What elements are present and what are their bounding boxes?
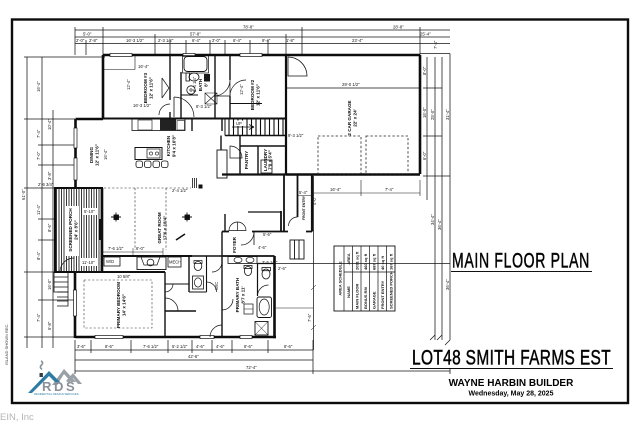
svg-text:LOT48 SMITH FARMS EST: LOT48 SMITH FARMS EST [412,347,611,370]
svg-text:3'-6": 3'-6" [77,344,86,349]
svg-text:7'-4": 7'-4" [385,187,394,192]
svg-text:6'-0": 6'-0" [422,151,427,160]
svg-text:KITCHEN9'4 x 16'8": KITCHEN9'4 x 16'8" [166,135,176,157]
svg-text:DINING12' x 11'6": DINING12' x 11'6" [89,144,99,166]
svg-text:11'-10": 11'-10" [82,260,95,265]
svg-text:40 sq ft: 40 sq ft [380,255,385,270]
svg-text:4'-6": 4'-6" [258,245,267,250]
svg-text:460 sq ft: 460 sq ft [363,253,368,270]
svg-text:2'-8": 2'-8" [89,38,98,43]
svg-text:BONUS RM: BONUS RM [363,287,368,309]
svg-text:AREA: AREA [346,253,351,264]
svg-text:GARAGE: GARAGE [372,291,377,309]
svg-text:8'-6": 8'-6" [244,344,253,349]
svg-text:4'-6": 4'-6" [216,344,225,349]
svg-text:9'-4": 9'-4" [262,38,271,43]
svg-text:4'-6": 4'-6" [196,344,205,349]
svg-text:2'-6 3/4": 2'-6 3/4" [38,182,54,187]
svg-text:16'-4": 16'-4" [103,149,108,160]
svg-text:2091 sq ft: 2091 sq ft [355,251,360,270]
svg-text:7'-0": 7'-0" [36,151,41,160]
svg-text:Wednesday, May 28, 2025: Wednesday, May 28, 2025 [469,391,554,398]
svg-text:9'-3 1/2": 9'-3 1/2" [288,133,304,138]
svg-text:5'-8": 5'-8" [47,321,52,330]
svg-text:16'-4": 16'-4" [36,81,41,92]
svg-text:8'-4 1/4": 8'-4 1/4" [192,76,197,92]
svg-text:3'-5 1/2": 3'-5 1/2" [262,260,278,265]
svg-text:ISLAND SHOWN REC.: ISLAND SHOWN REC. [4,323,9,365]
svg-text:8'-3 1/2": 8'-3 1/2" [196,104,212,109]
svg-text:W/D: W/D [106,259,114,264]
svg-text:4'-0": 4'-0" [312,196,317,205]
svg-text:SCREENED PORCH: SCREENED PORCH [389,271,394,309]
svg-text:RESIDENTIAL DESIGN SERVICES: RESIDENTIAL DESIGN SERVICES [34,392,79,396]
svg-text:8'-6": 8'-6" [47,223,52,232]
svg-text:8'-6": 8'-6" [284,344,293,349]
svg-text:8'-4": 8'-4" [36,251,41,260]
svg-text:6'-4": 6'-4" [233,38,242,43]
svg-text:MECH: MECH [169,260,181,265]
svg-text:16'-3 1/2": 16'-3 1/2" [133,103,151,108]
svg-text:NAME: NAME [346,286,351,298]
svg-text:7'-6 1/2": 7'-6 1/2" [108,246,124,251]
svg-text:16'-4": 16'-4" [330,187,341,192]
svg-text:31'-4": 31'-4" [445,109,450,120]
svg-text:FRONT ENTRY: FRONT ENTRY [380,280,385,309]
svg-text:5'-0": 5'-0" [83,32,92,37]
svg-text:AREA SCHEDULE: AREA SCHEDULE [338,261,343,296]
svg-text:687 sq ft: 687 sq ft [372,253,377,270]
svg-text:7'-4": 7'-4" [433,40,438,49]
svg-text:5'-4": 5'-4" [299,190,308,195]
svg-text:PANTRY: PANTRY [244,151,249,169]
svg-text:5'-6": 5'-6" [263,232,272,237]
svg-text:8'-6": 8'-6" [105,344,114,349]
svg-text:7'-6": 7'-6" [307,313,312,322]
svg-text:10'-4": 10'-4" [47,119,52,130]
svg-text:29'-0 1/2": 29'-0 1/2" [342,82,360,87]
svg-text:1'-8": 1'-8" [286,38,295,43]
svg-text:11'-4": 11'-4" [36,204,41,215]
svg-text:36'-4": 36'-4" [437,219,442,230]
svg-text:78'-8": 78'-8" [243,25,254,30]
svg-text:3'-8": 3'-8" [47,171,52,180]
svg-text:7'-6 1/2": 7'-6 1/2" [143,344,159,349]
svg-text:WIC: WIC [214,282,219,290]
svg-text:25'-0": 25'-0" [430,109,435,120]
svg-text:6'-4": 6'-4" [192,38,201,43]
svg-text:10 5/8": 10 5/8" [117,274,131,279]
svg-text:28'-8": 28'-8" [393,25,404,30]
svg-text:25'-4": 25'-4" [420,32,431,37]
svg-text:16'-3 1/2": 16'-3 1/2" [126,38,144,43]
svg-text:8'-0": 8'-0" [422,66,427,75]
svg-text:16'-0": 16'-0" [422,107,427,118]
svg-text:MAIN FLOOR: MAIN FLOOR [355,284,360,309]
svg-text:42'-6": 42'-6" [188,354,199,359]
svg-text:57'-8": 57'-8" [190,32,201,37]
svg-text:61'-0": 61'-0" [21,189,26,200]
svg-text:5'-10": 5'-10" [84,209,95,214]
svg-text:2'-0": 2'-0" [212,38,221,43]
svg-text:2'-3 1/2": 2'-3 1/2" [158,38,174,43]
svg-text:2'-4 1/2": 2'-4 1/2" [172,188,188,193]
svg-text:7'-4": 7'-4" [36,129,41,138]
svg-text:2'-6": 2'-6" [278,266,287,271]
svg-text:EIN, Inc: EIN, Inc [0,412,34,423]
svg-text:12'-4": 12'-4" [239,84,244,95]
svg-text:FOYER: FOYER [232,236,237,253]
svg-text:23'-4": 23'-4" [352,38,363,43]
svg-text:UP: UP [236,121,242,126]
svg-text:MAIN FLOOR PLAN: MAIN FLOOR PLAN [452,250,590,273]
svg-text:72'-4": 72'-4" [246,365,257,370]
svg-text:16'-4": 16'-4" [138,64,149,69]
svg-text:WAYNE HARBIN BUILDER: WAYNE HARBIN BUILDER [449,378,574,389]
svg-text:7'-4": 7'-4" [36,313,41,322]
svg-text:34'-4": 34'-4" [430,214,435,225]
svg-text:16'-0": 16'-0" [47,279,52,290]
svg-text:FRONT ENTRY: FRONT ENTRY [302,195,306,220]
svg-text:5'-2 1/2": 5'-2 1/2" [172,344,188,349]
svg-text:167 sq ft: 167 sq ft [389,253,394,270]
svg-text:36'-4": 36'-4" [445,279,450,290]
svg-text:2'-0": 2'-0" [76,38,85,43]
svg-text:12'-4": 12'-4" [126,79,131,90]
svg-text:6'-0": 6'-0" [136,246,145,251]
